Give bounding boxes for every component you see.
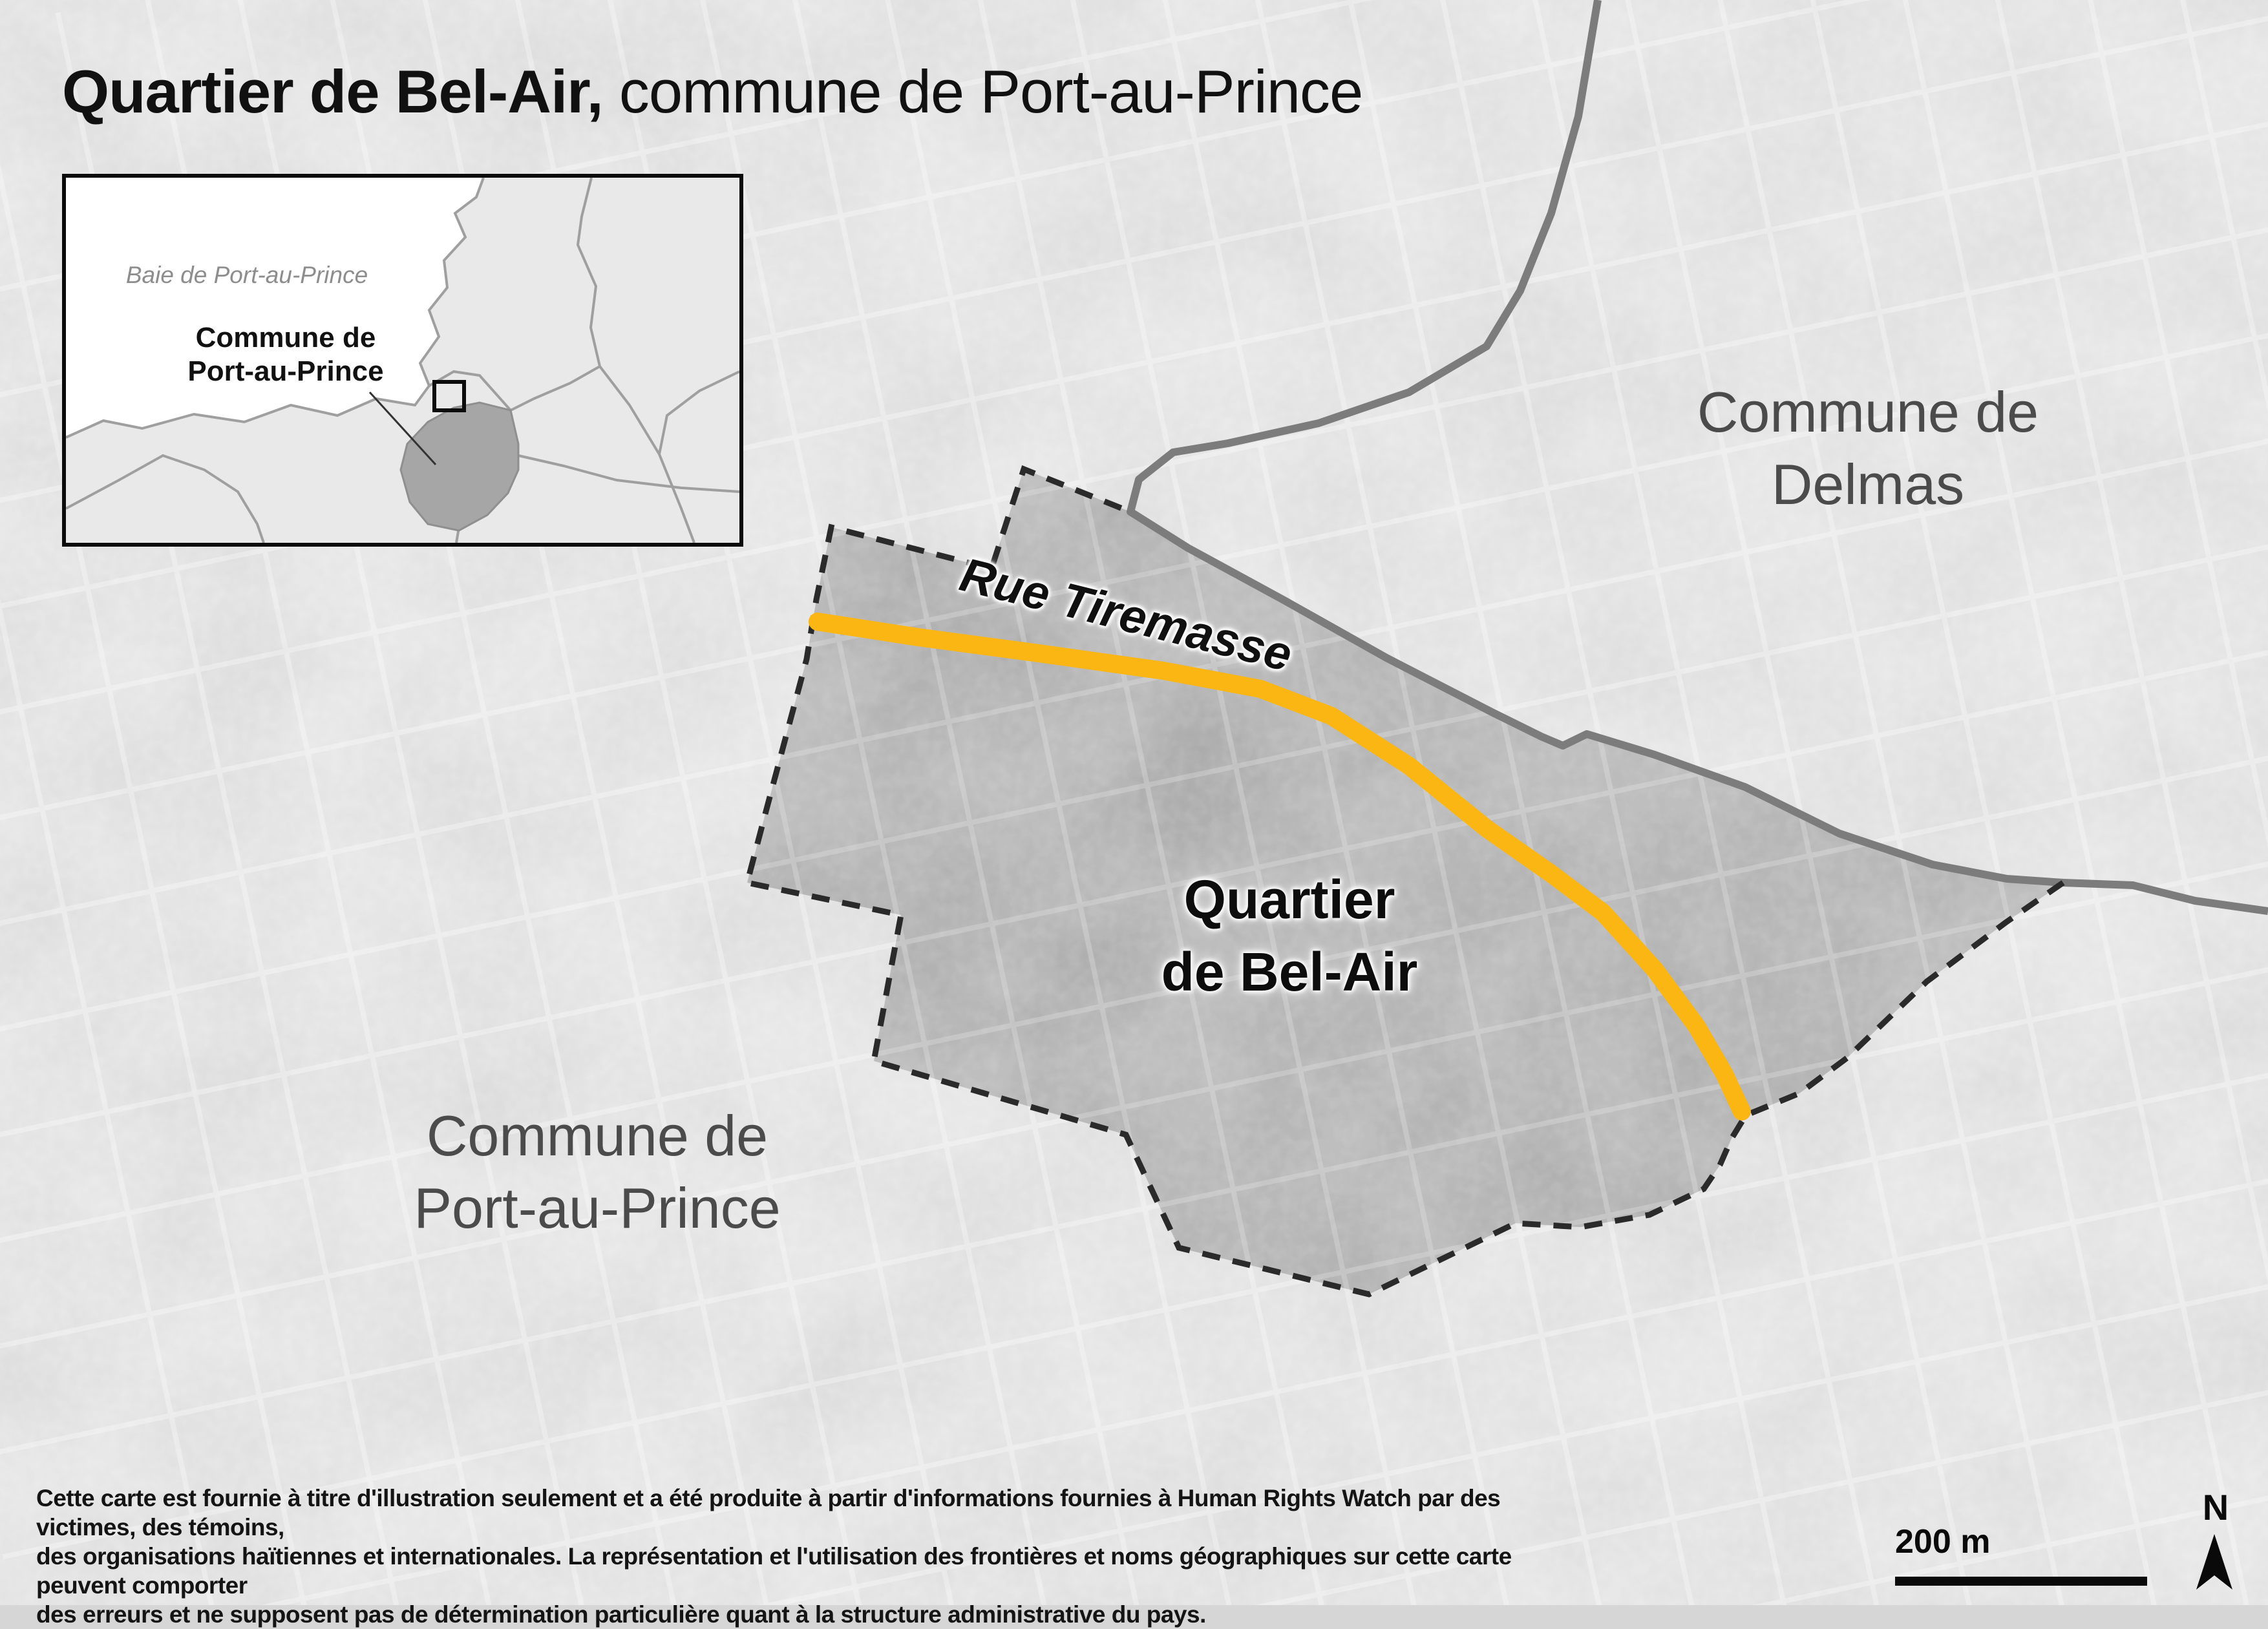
title-bold: Quartier de Bel-Air, [62,58,603,125]
label-commune-pap-line2: Port-au-Prince [326,1172,869,1245]
label-quartier-belair-line1: Quartier [1073,863,1506,936]
label-quartier-belair: Quartier de Bel-Air [1073,863,1506,1008]
north-label: N [2195,1486,2236,1528]
label-commune-delmas: Commune de Delmas [1596,376,2139,521]
title-regular: commune de Port-au-Prince [603,58,1363,125]
scale-bar-label: 200 m [1895,1522,1990,1561]
map-page: { "title": { "bold": "Quartier de Bel-Ai… [0,0,2268,1605]
disclaimer-line-3: des erreurs et ne supposent pas de déter… [36,1600,1587,1629]
inset-callout-label: Commune de Port-au-Prince [150,321,421,388]
disclaimer-text: Cette carte est fournie à titre d'illust… [36,1484,1587,1629]
inset-callout-line2: Port-au-Prince [150,355,421,388]
disclaimer-line-2: des organisations haïtiennes et internat… [36,1542,1587,1600]
label-commune-delmas-line1: Commune de [1596,376,2139,448]
scale-bar [1895,1577,2147,1586]
north-arrow-icon [2194,1534,2235,1591]
label-commune-delmas-line2: Delmas [1596,448,2139,521]
inset-sea-label: Baie de Port-au-Prince [111,262,383,289]
page-title: Quartier de Bel-Air, commune de Port-au-… [62,57,2001,127]
label-commune-pap-line1: Commune de [326,1100,869,1172]
label-quartier-belair-line2: de Bel-Air [1073,936,1506,1008]
inset-locator-map: Baie de Port-au-Prince Commune de Port-a… [62,174,743,547]
inset-callout-line1: Commune de [150,321,421,355]
label-commune-pap: Commune de Port-au-Prince [326,1100,869,1245]
disclaimer-line-1: Cette carte est fournie à titre d'illust… [36,1484,1587,1542]
